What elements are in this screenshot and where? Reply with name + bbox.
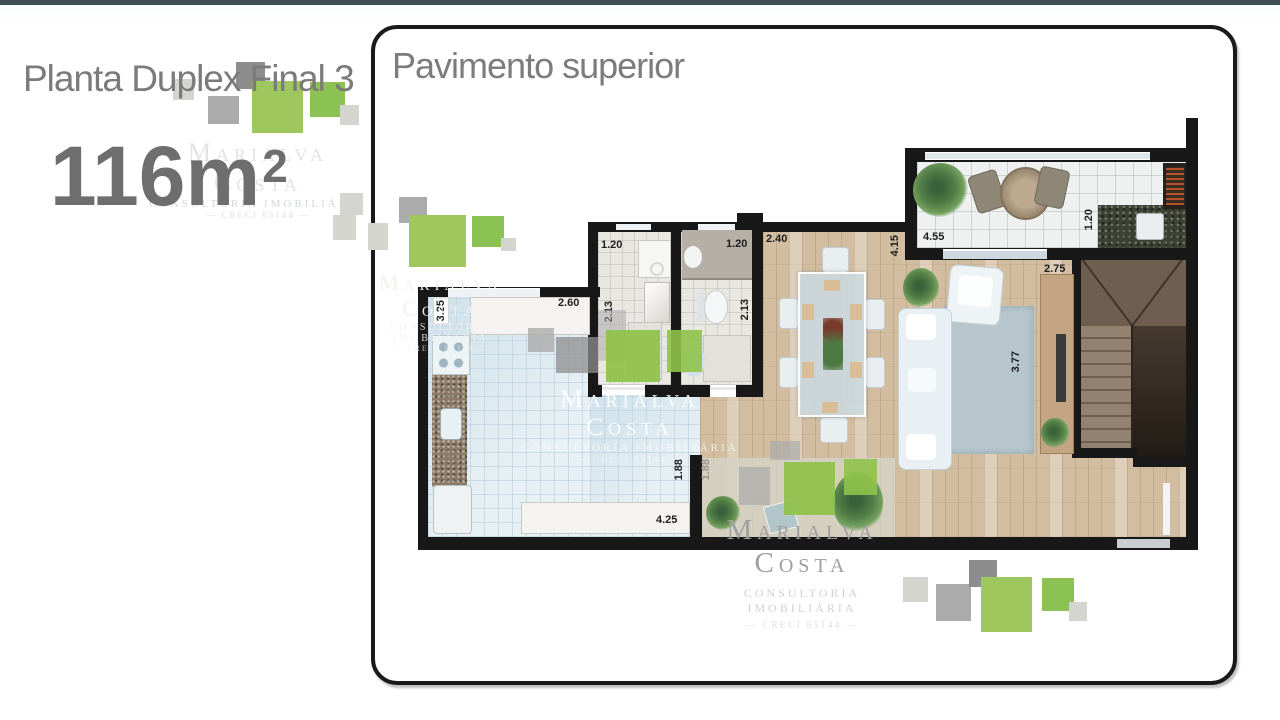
dim-kitchen-opening: 1.88	[673, 459, 685, 480]
dim-kitchen-width: 2.60	[558, 297, 579, 309]
place-mat	[822, 402, 838, 413]
deco-square	[340, 193, 363, 215]
plant-icon	[903, 268, 939, 308]
shelf-niche	[644, 282, 670, 323]
table-centerpiece	[823, 318, 843, 370]
deco-square	[739, 467, 770, 505]
place-mat	[850, 304, 862, 320]
deco-square	[981, 577, 1032, 632]
wall-left	[418, 287, 428, 550]
deco-square	[208, 96, 239, 124]
tv-icon	[1056, 334, 1066, 402]
place-mat	[824, 280, 840, 291]
dim-living-width: 3.77	[1010, 351, 1022, 372]
curtain-strip	[1163, 483, 1170, 535]
rug	[944, 306, 1034, 454]
dim-stairs-width: 2.75	[1044, 263, 1065, 275]
dim-dining-depth: 4.15	[889, 235, 901, 256]
dining-chair	[865, 299, 885, 330]
dim-counter-width: 4.25	[656, 514, 677, 526]
dim-kitchen-depth: 3.25	[433, 297, 449, 324]
deco-square	[556, 337, 598, 373]
dim-dining-width: 2.40	[766, 233, 787, 245]
deco-square	[606, 330, 660, 382]
bath2-sink	[684, 246, 702, 268]
dining-chair	[865, 357, 885, 388]
dim-bath2-depth: 2.13	[739, 299, 751, 320]
deco-square	[409, 215, 466, 267]
slide: Planta Duplex Final 3 116m2 Pavimento su…	[0, 0, 1280, 720]
shower-floor	[703, 335, 751, 382]
bath2-door	[710, 387, 736, 390]
toilet-bowl	[704, 290, 728, 324]
deco-square	[784, 462, 835, 515]
place-mat	[850, 362, 862, 378]
bottom-window	[1117, 539, 1170, 548]
wall-bath-bottom-b	[645, 385, 710, 397]
kitchen-pass-window	[448, 288, 540, 297]
dining-chair	[820, 417, 848, 443]
sofa-pillow	[906, 434, 936, 460]
area-value: 116m2	[50, 128, 286, 225]
barbecue-sink	[1136, 213, 1164, 240]
deco-square	[501, 238, 516, 251]
deco-square	[528, 328, 554, 352]
top-gradient	[0, 5, 1280, 23]
deco-square	[368, 223, 388, 250]
area-exponent: 2	[262, 140, 288, 192]
deco-square	[472, 216, 504, 247]
grill-fire	[1166, 167, 1184, 205]
dim-bath2-width: 1.20	[726, 238, 747, 250]
wall-grill-stub	[1186, 118, 1198, 152]
top-accent-bar	[0, 0, 1280, 5]
toilet-tank	[697, 292, 704, 322]
wall-stairs-bottom-right	[1133, 457, 1198, 467]
wall-bath2-right	[752, 222, 763, 397]
bath1-door	[602, 387, 645, 390]
deco-square	[770, 441, 800, 460]
bath1-window	[616, 224, 651, 230]
place-mat	[802, 362, 814, 378]
deco-square	[844, 459, 877, 495]
terrace-glass-wall	[925, 152, 1150, 160]
wall-vent-stub	[737, 213, 763, 225]
slide-title: Planta Duplex Final 3	[23, 58, 354, 100]
sofa-pillow	[906, 314, 936, 340]
panel-title: Pavimento superior	[392, 45, 684, 87]
wall-bath-bottom-a	[588, 385, 602, 397]
dining-chair	[822, 247, 849, 273]
sofa-pillow	[908, 368, 936, 392]
wall-right	[1186, 148, 1198, 550]
dim-living-opening: 1.88	[700, 459, 712, 480]
deco-square	[936, 584, 971, 621]
washer-door	[650, 262, 664, 276]
area-number: 116m	[50, 129, 260, 223]
dining-chair	[779, 298, 799, 329]
armchair-cushion	[957, 275, 993, 308]
plant-icon	[706, 496, 740, 530]
deco-square	[667, 330, 702, 372]
dim-barbecue-width: 1.20	[1083, 209, 1095, 230]
deco-square	[333, 215, 356, 240]
wall-bath-bottom-c	[736, 385, 763, 397]
plant-icon	[1041, 418, 1069, 448]
place-mat	[802, 304, 814, 320]
stairwell-void	[1133, 326, 1186, 466]
deco-square	[903, 577, 928, 602]
stove-burners	[436, 339, 466, 371]
terrace-sliding-door	[943, 249, 1047, 259]
dining-chair	[779, 357, 799, 388]
kitchen-sink	[440, 408, 462, 440]
fridge-icon	[433, 485, 472, 534]
stairs-steps	[1081, 326, 1132, 448]
dim-terrace-width: 4.55	[923, 231, 944, 243]
deco-square	[1069, 602, 1087, 621]
deco-square	[340, 105, 359, 125]
wall-terrace-left	[905, 148, 917, 260]
wall-stairs-bottom-left	[1072, 448, 1138, 458]
terrace-plant-icon	[913, 163, 968, 217]
dim-bath1-width: 1.20	[601, 239, 622, 251]
wall-bottom	[418, 537, 1196, 550]
stairs-landing	[1081, 256, 1186, 326]
